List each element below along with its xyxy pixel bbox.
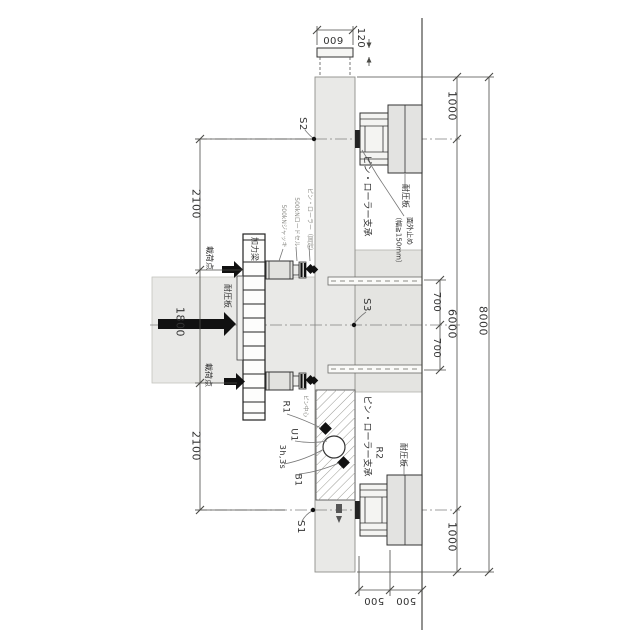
end-plate-top xyxy=(317,48,353,77)
bearing-plate-strip xyxy=(237,276,243,360)
loading-beam xyxy=(243,234,265,420)
label-s3: S3 xyxy=(361,298,371,312)
label-bearing-plate-bottom: 耐圧板 xyxy=(399,443,407,467)
label-bearing-plate-top: 耐圧板 xyxy=(401,184,409,208)
label-bearing-bottom: ピン・ローラー支承 xyxy=(362,395,371,476)
dim-1000-top: 1000 xyxy=(447,91,458,121)
dim-plate-thickness: 120 xyxy=(355,28,365,49)
label-out-of-plane-width: （幅≧150mm） xyxy=(395,213,402,267)
dimension-arrowheads xyxy=(367,43,372,63)
dim-500-right: 500 xyxy=(396,595,417,605)
label-jack: 500kNジャッキ xyxy=(280,204,286,247)
dim-plate-width: 600 xyxy=(323,34,344,44)
dim-700-upper: 700 xyxy=(431,292,441,313)
label-gauges: 3h,3s xyxy=(278,445,286,469)
label-pin-roller-fixed: ピン・ローラー（固定） xyxy=(306,188,312,254)
label-u1: U1 xyxy=(289,428,298,441)
label-s1: S1 xyxy=(295,520,305,534)
drawing-canvas xyxy=(0,0,640,640)
dim-700-lower: 700 xyxy=(431,338,441,359)
technical-drawing: 600 120 2100 1800 2100 700 700 1000 6000… xyxy=(0,0,640,640)
jack-upper xyxy=(266,261,318,279)
label-b1: B1 xyxy=(293,474,302,487)
label-load-point-lower: 載荷点 xyxy=(204,363,212,387)
dim-500-left: 500 xyxy=(364,595,385,605)
label-load-cell: 500kNロードセル xyxy=(293,197,299,246)
label-load-point-upper: 載荷点 xyxy=(205,246,213,270)
dim-6000: 6000 xyxy=(447,309,458,339)
label-bearing-plate-loading: 耐圧板 xyxy=(223,284,231,308)
bearing-bottom xyxy=(355,475,422,545)
label-loading-beam: 加力梁 xyxy=(250,237,258,261)
dim-2100-upper: 2100 xyxy=(191,189,202,219)
dim-8000: 8000 xyxy=(478,306,489,336)
label-out-of-plane: 面外止め xyxy=(406,217,413,245)
label-bearing-top: ピン・ローラー支承 xyxy=(362,155,371,236)
label-pin-center: ピン中心 xyxy=(301,395,307,417)
label-s2: S2 xyxy=(297,117,307,131)
label-r1: R1 xyxy=(281,401,290,414)
label-r2: R2 xyxy=(374,447,383,460)
anchorage-block xyxy=(316,390,355,500)
dim-1000-bottom: 1000 xyxy=(447,522,458,552)
dim-1800: 1800 xyxy=(175,307,186,337)
dim-2100-lower: 2100 xyxy=(191,431,202,461)
load-arrow-upper xyxy=(222,261,243,278)
